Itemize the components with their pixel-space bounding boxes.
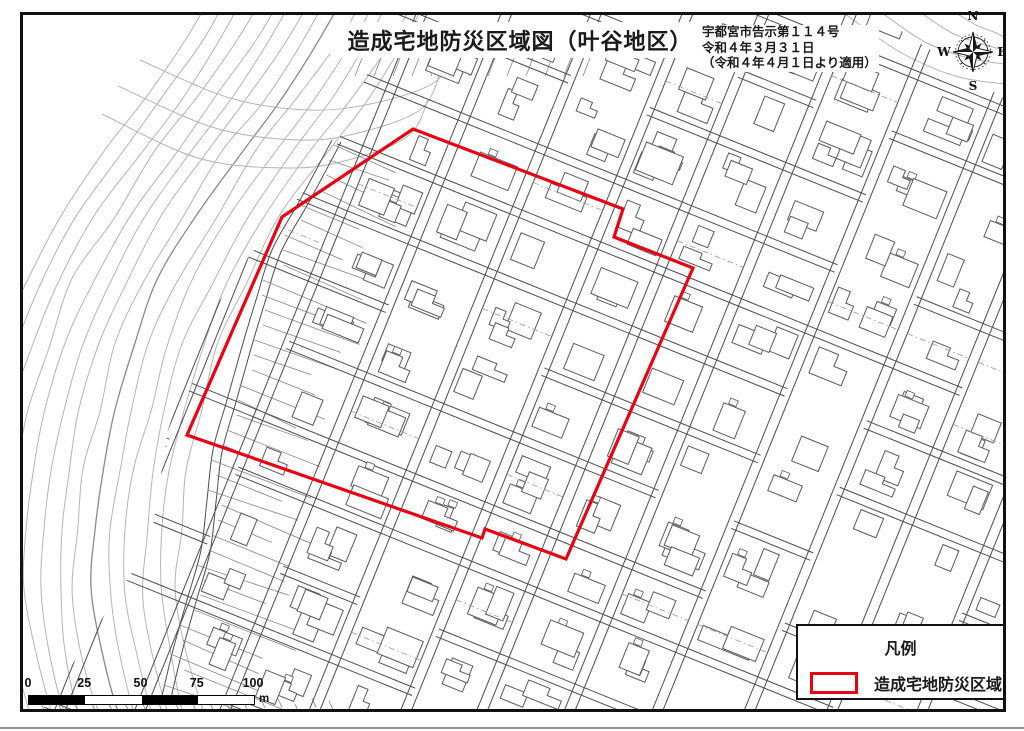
compass-south-label: S	[969, 79, 978, 93]
scale-segment	[29, 696, 85, 704]
scale-bar: 0255075100 m	[28, 676, 293, 710]
scale-bar-segments	[28, 695, 255, 705]
compass-rose: N E S W	[935, 8, 1011, 94]
notice-block: 宇都宮市告示第１１４号 令和４年３月３１日 （令和４年４月１日より適用）	[700, 25, 879, 72]
notice-line-2: 令和４年３月３１日	[702, 41, 877, 57]
legend-box: 凡例 造成宅地防災区域	[796, 624, 1005, 700]
disaster-prevention-area-map-page: 造成宅地防災区域図（叶谷地区） 宇都宮市告示第１１４号 令和４年３月３１日 （令…	[0, 0, 1024, 731]
page-bottom-edge	[0, 727, 1024, 729]
cadastral-map-canvas	[0, 0, 1024, 731]
scale-tick: 50	[134, 676, 148, 690]
scale-segment	[198, 696, 254, 704]
scale-segment	[142, 696, 198, 704]
compass-north-label: N	[968, 9, 979, 23]
scale-tick: 0	[25, 676, 32, 690]
scale-unit-label: m	[259, 693, 269, 705]
map-title: 造成宅地防災区域図（叶谷地区）	[330, 22, 710, 58]
disaster-area-boundary	[187, 129, 693, 559]
compass-star-shading	[953, 32, 993, 72]
notice-line-3: （令和４年４月１日より適用）	[702, 56, 877, 72]
scale-tick: 100	[243, 676, 264, 690]
legend-title: 凡例	[798, 635, 1003, 659]
scale-segment	[85, 696, 141, 704]
scale-tick: 75	[190, 676, 204, 690]
legend-item-disaster-area: 造成宅地防災区域	[810, 671, 1003, 695]
compass-rose-icon: N E S W	[935, 8, 1011, 94]
notice-line-1: 宇都宮市告示第１１４号	[702, 25, 877, 41]
compass-east-label: E	[997, 45, 1006, 59]
scale-tick: 25	[77, 676, 91, 690]
compass-west-label: W	[936, 45, 951, 59]
legend-item-label: 造成宅地防災区域	[874, 671, 1002, 695]
legend-swatch-disaster-area	[810, 672, 858, 694]
